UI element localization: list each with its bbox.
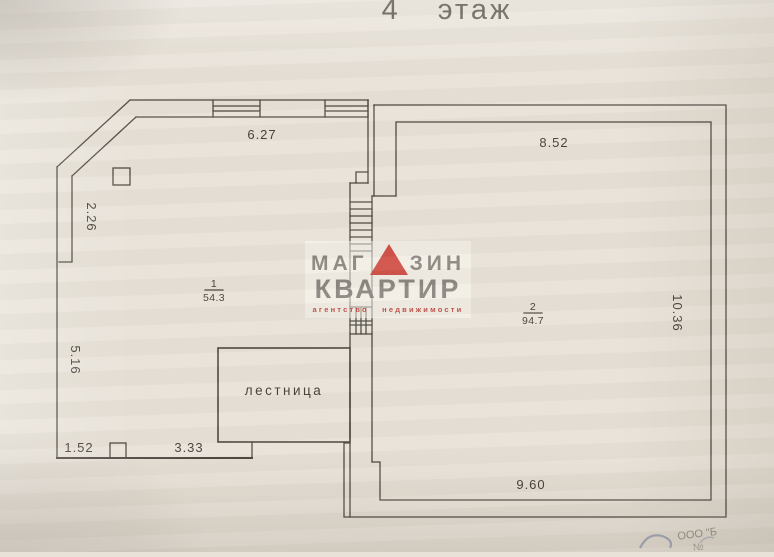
staircase-label: лестница bbox=[245, 383, 324, 398]
dim-bottom-center-label: 3.33 bbox=[174, 440, 203, 455]
watermark-line3: агентство недвижимости bbox=[313, 305, 464, 314]
room2-area-label: 94.7 bbox=[522, 315, 544, 327]
dim-bottom-right-label: 9.60 bbox=[516, 477, 545, 492]
room1-area-label: 54.3 bbox=[203, 292, 225, 304]
page-title: 4 этаж bbox=[60, 0, 774, 27]
agency-watermark: МАГ ЗИН КВАРТИР агентство недвижимости bbox=[305, 241, 471, 318]
watermark-line2: КВАРТИР bbox=[315, 275, 462, 303]
dim-bottom-left-label: 1.52 bbox=[64, 440, 93, 455]
room1-number-label: 1 bbox=[211, 278, 217, 290]
dim-right-side-label: 10.36 bbox=[670, 294, 685, 332]
pillar-bottom-left bbox=[110, 443, 126, 458]
dim-top-right-label: 8.52 bbox=[539, 135, 568, 150]
dim-left-lower-label: 5.16 bbox=[68, 345, 83, 374]
pillar-top-left bbox=[113, 168, 130, 185]
watermark-line1-suffix: ЗИН bbox=[410, 253, 465, 274]
watermark-line1: МАГ ЗИН bbox=[311, 244, 465, 274]
window-openings bbox=[213, 100, 368, 117]
dim-top-left-label: 6.27 bbox=[247, 127, 276, 142]
red-triangle-logo-icon bbox=[370, 244, 408, 275]
dim-left-upper-label: 2.26 bbox=[84, 202, 99, 231]
room2-number-label: 2 bbox=[530, 301, 536, 313]
watermark-line1-prefix: МАГ bbox=[311, 253, 368, 274]
